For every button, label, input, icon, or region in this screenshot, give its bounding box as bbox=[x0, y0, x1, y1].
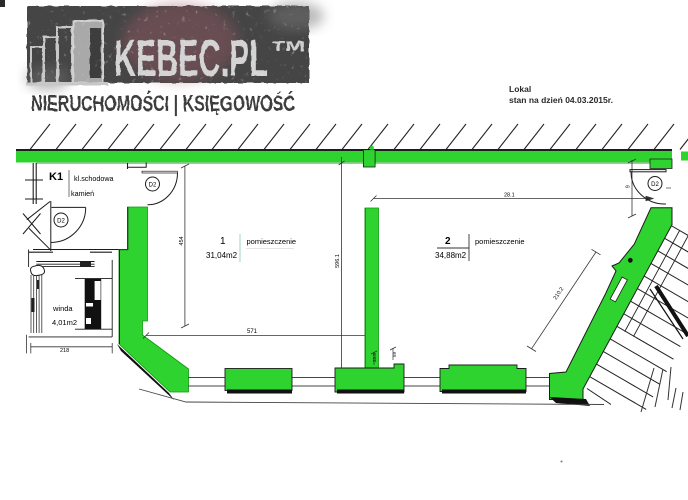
svg-text:Lokal: Lokal bbox=[509, 84, 531, 94]
svg-text:NIERUCHOMOŚCI | KSIĘGOWOŚĆ: NIERUCHOMOŚCI | KSIĘGOWOŚĆ bbox=[31, 91, 295, 116]
svg-text:winda: winda bbox=[52, 304, 73, 313]
svg-text:218: 218 bbox=[60, 348, 69, 354]
svg-text:kamień: kamień bbox=[71, 189, 94, 198]
svg-text:K1: K1 bbox=[49, 171, 63, 183]
svg-text:D2: D2 bbox=[149, 183, 157, 189]
svg-text:59: 59 bbox=[392, 351, 397, 357]
svg-text:9: 9 bbox=[626, 185, 632, 188]
svg-text:454: 454 bbox=[179, 236, 185, 245]
svg-text:kl.schodowa: kl.schodowa bbox=[74, 174, 114, 183]
svg-text:33.5: 33.5 bbox=[372, 353, 377, 362]
svg-text:1: 1 bbox=[220, 236, 226, 247]
svg-text:596.1: 596.1 bbox=[335, 254, 341, 268]
svg-text:pomieszczenie: pomieszczenie bbox=[247, 237, 297, 246]
svg-text:4,01m2: 4,01m2 bbox=[52, 318, 77, 327]
svg-text:stan na dzień 04.03.2015r.: stan na dzień 04.03.2015r. bbox=[509, 95, 613, 105]
svg-text:D2: D2 bbox=[57, 219, 65, 225]
svg-text:D2: D2 bbox=[651, 182, 659, 188]
svg-text:31,04m2: 31,04m2 bbox=[206, 251, 238, 260]
svg-text:pomieszczenie: pomieszczenie bbox=[475, 237, 525, 246]
svg-text:571: 571 bbox=[247, 329, 258, 335]
svg-text:28.1: 28.1 bbox=[504, 193, 515, 199]
svg-text:210.2: 210.2 bbox=[553, 286, 566, 301]
svg-text:2: 2 bbox=[445, 236, 451, 247]
svg-text:34,88m2: 34,88m2 bbox=[435, 251, 467, 260]
